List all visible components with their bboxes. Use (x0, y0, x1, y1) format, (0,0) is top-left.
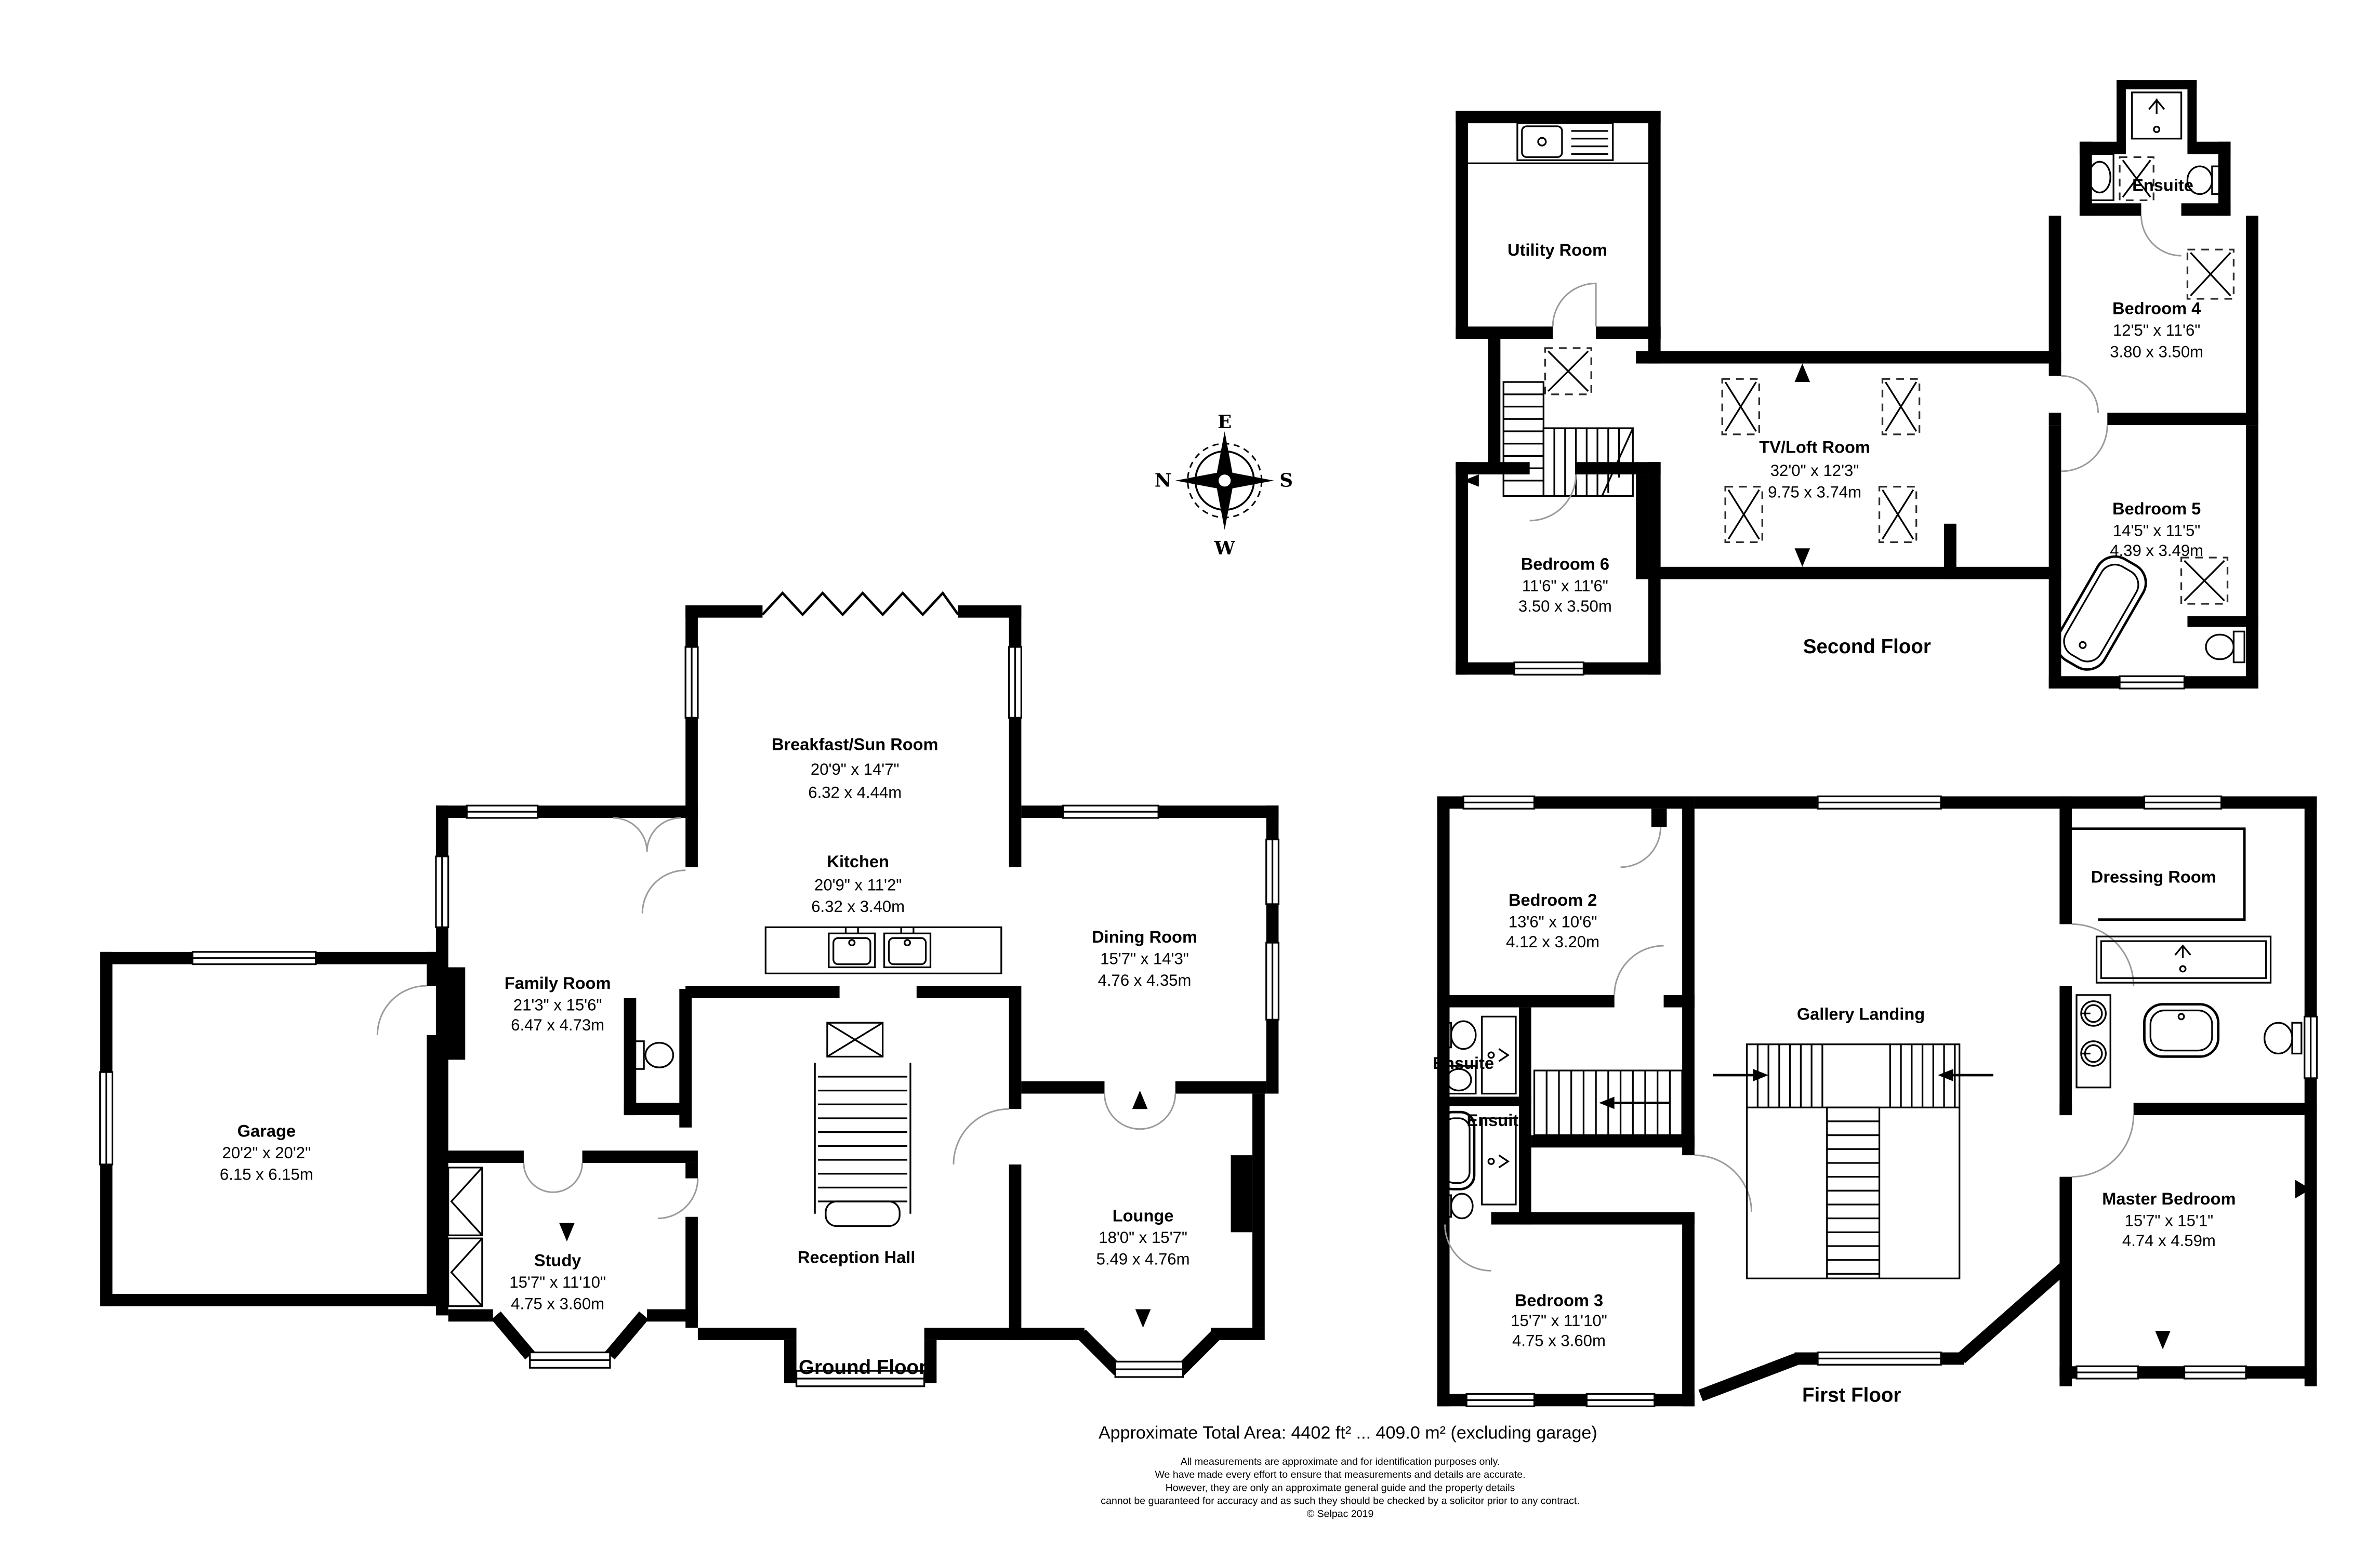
room-dim-breakfast-metric: 6.32 x 4.44m (808, 783, 902, 801)
room-dim-master-imperial: 15'7" x 15'1" (2125, 1211, 2214, 1229)
direction-arrow-down (1135, 1309, 1151, 1328)
flue-icon (827, 1023, 883, 1056)
window (1466, 1394, 1534, 1407)
direction-arrow-up (1132, 1091, 1148, 1109)
bath-icon (2144, 1004, 2218, 1057)
skylight-icon (2187, 249, 2233, 299)
room-dim-family-imperial: 21'3" x 15'6" (513, 996, 602, 1014)
compass-bottom-label: W (1214, 538, 1236, 559)
bedroom5-door-arc (2061, 425, 2107, 471)
toilet-icon (2265, 1023, 2302, 1053)
room-label-dressing: Dressing Room (2091, 867, 2216, 886)
fireplace (1231, 1155, 1253, 1232)
disclaimer-line: However, they are only an approximate ge… (1166, 1482, 1515, 1493)
window (100, 1072, 113, 1165)
room-dim-bedroom3-imperial: 15'7" x 11'10" (1511, 1312, 1607, 1330)
room-dim-kitchen-imperial: 20'9" x 11'2" (814, 876, 902, 894)
room-label-study: Study (534, 1251, 581, 1270)
sunroom-glazed-roofline (762, 593, 958, 614)
room-label-bedroom2: Bedroom 2 (1509, 890, 1597, 909)
garage-door-arc (377, 986, 427, 1035)
room-label-tvloft: TV/Loft Room (1759, 437, 1870, 456)
room-dim-bedroom6-imperial: 11'6" x 11'6" (1522, 577, 1608, 595)
skylight-icon (1880, 487, 1916, 543)
room-dim-study-imperial: 15'7" x 11'10" (509, 1273, 606, 1291)
floorplan-page: Utility Room TV/Loft Room 32'0" x 12'3" … (0, 0, 2380, 1548)
compass-top-label: E (1218, 412, 1232, 433)
ensuite-door-arc (2141, 216, 2181, 256)
room-label-bedroom5: Bedroom 5 (2112, 499, 2201, 518)
window (2185, 1366, 2246, 1379)
stairs-first-floor (1535, 1070, 1683, 1135)
room-label-dining: Dining Room (1092, 927, 1197, 946)
utility-door-arc (1553, 283, 1596, 326)
double-door-arc (524, 1163, 583, 1192)
window (1266, 943, 1279, 1020)
skylight-icon (1882, 379, 1919, 434)
room-dim-bedroom4-metric: 3.80 x 3.50m (2110, 343, 2203, 361)
vanity-basins-icon (2077, 995, 2110, 1088)
window (1514, 663, 1583, 675)
room-dim-bedroom3-metric: 4.75 x 3.60m (1512, 1332, 1606, 1350)
room-dim-garage-imperial: 20'2" x 20'2" (222, 1144, 311, 1162)
floorplan-svg: Utility Room TV/Loft Room 32'0" x 12'3" … (0, 0, 2380, 1548)
kitchen-island (765, 927, 1001, 973)
door-arc (642, 870, 685, 914)
landing-bay-walls (1701, 1266, 2066, 1396)
room-dim-bedroom5-metric: 4.39 x 3.49m (2110, 541, 2203, 560)
disclaimer-line: All measurements are approximate and for… (1181, 1456, 1500, 1467)
room-label-breakfast: Breakfast/Sun Room (772, 735, 938, 754)
floor-label-first: First Floor (1802, 1384, 1901, 1406)
toilet-icon (633, 1041, 673, 1069)
shower-cubicle-icon (1482, 1118, 1516, 1205)
window (1586, 1394, 1654, 1407)
floor-label-ground: Ground Floor (799, 1356, 927, 1379)
second-floor-plan: Utility Room TV/Loft Room 32'0" x 12'3" … (1456, 80, 2258, 689)
room-dim-bedroom2-imperial: 13'6" x 10'6" (1509, 912, 1597, 931)
room-label-lounge: Lounge (1113, 1206, 1174, 1225)
ground-floor-plan: Breakfast/Sun Room 20'9" x 14'7" 6.32 x … (100, 593, 1279, 1386)
direction-arrow-down (2155, 1331, 2171, 1349)
window (193, 952, 316, 964)
direction-arrow-up (1795, 364, 1810, 382)
room-label-ensuite1: Ensuite (1433, 1053, 1494, 1073)
bath-icon (2049, 549, 2153, 677)
room-label-reception: Reception Hall (798, 1248, 915, 1267)
dressing-door-arc (2072, 924, 2134, 986)
room-dim-dining-imperial: 15'7" x 14'3" (1100, 950, 1189, 968)
window (436, 856, 448, 927)
disclaimer-line: We have made every effort to ensure that… (1155, 1469, 1525, 1480)
skylight-icon (1725, 487, 1762, 543)
skylight-icon (1545, 348, 1591, 394)
window (467, 805, 537, 818)
room-label-bedroom4: Bedroom 4 (2112, 299, 2201, 318)
window (1463, 796, 1534, 809)
room-label-garage: Garage (237, 1121, 296, 1141)
lounge-door-arc (954, 1109, 1009, 1165)
sink-icon (829, 927, 875, 967)
floor-label-second: Second Floor (1803, 636, 1931, 658)
shower-icon (2097, 936, 2271, 983)
room-dim-family-metric: 6.47 x 4.73m (511, 1016, 604, 1034)
room-label-ensuite2: Ensuite (1467, 1110, 1528, 1130)
bedroom4-door-arc (2061, 376, 2098, 413)
utility-sink-icon (1517, 123, 1613, 160)
bedroom3-door-arc (1445, 1225, 1491, 1271)
room-label-bedroom3: Bedroom 3 (1515, 1291, 1603, 1310)
stairs-ground-floor (815, 1063, 910, 1226)
window (1009, 647, 1022, 718)
room-label-bedroom6: Bedroom 6 (1521, 554, 1609, 574)
room-dim-lounge-metric: 5.49 x 4.76m (1096, 1250, 1190, 1268)
room-label-master: Master Bedroom (2102, 1189, 2236, 1208)
room-dim-bedroom2-metric: 4.12 x 3.20m (1506, 933, 1599, 951)
room-label-family: Family Room (505, 973, 611, 993)
disclaimer-line: cannot be guaranteed for accuracy and as… (1101, 1496, 1579, 1507)
gallery-staircase (1713, 1044, 1993, 1279)
skylight-icon (2181, 558, 2228, 604)
room-dim-bedroom5-imperial: 14'5" x 11'5" (2113, 522, 2200, 540)
double-door-arc (613, 818, 681, 852)
copyright-text: © Selpac 2019 (1307, 1509, 1374, 1520)
landing-door-arc (1695, 1155, 1752, 1212)
stairs-second-floor (1503, 382, 1633, 496)
study-door-arc (658, 1179, 698, 1219)
window (1063, 805, 1158, 818)
total-area-text: Approximate Total Area: 4402 ft² ... 409… (1099, 1423, 1597, 1443)
window (685, 647, 698, 718)
skylight-icon (1722, 379, 1759, 434)
toilet-icon (2206, 631, 2244, 662)
window (1266, 839, 1279, 904)
window (2144, 796, 2221, 809)
window (2305, 1016, 2317, 1078)
room-dim-garage-metric: 6.15 x 6.15m (220, 1166, 313, 1184)
bay-window (1818, 1353, 1941, 1365)
room-dim-study-metric: 4.75 x 3.60m (511, 1295, 604, 1313)
wardrobe-icon (448, 1168, 482, 1306)
shower-icon (2132, 92, 2181, 139)
bay-window (1115, 1361, 1183, 1377)
door-arc (1621, 827, 1661, 867)
room-dim-tvloft-metric: 9.75 x 3.74m (1768, 483, 1861, 501)
compass-rose-icon: E N S W (1155, 412, 1293, 559)
direction-arrow-down (1795, 548, 1810, 567)
master-door-arc (2072, 1115, 2134, 1177)
bay-window (530, 1353, 610, 1368)
sink-icon (884, 927, 931, 967)
room-label-gallery-landing: Gallery Landing (1797, 1004, 1925, 1023)
room-label-utility: Utility Room (1508, 240, 1607, 259)
room-dim-dining-metric: 4.76 x 4.35m (1098, 971, 1192, 989)
room-dim-bedroom6-metric: 3.50 x 3.50m (1518, 597, 1612, 615)
room-dim-lounge-imperial: 18'0" x 15'7" (1099, 1228, 1187, 1247)
bay-window-walls (496, 1315, 644, 1355)
room-label-kitchen: Kitchen (827, 852, 889, 871)
room-dim-kitchen-metric: 6.32 x 3.40m (811, 897, 905, 916)
room-dim-master-metric: 4.74 x 4.59m (2122, 1232, 2216, 1250)
compass-left-label: N (1155, 470, 1172, 492)
window (2077, 1366, 2138, 1379)
window (2120, 676, 2185, 689)
room-dim-breakfast-imperial: 20'9" x 14'7" (811, 760, 900, 778)
footer: Approximate Total Area: 4402 ft² ... 409… (1099, 1423, 1597, 1520)
room-label-ensuite-2f: Ensuite (2132, 176, 2193, 195)
first-floor-plan: Bedroom 2 13'6" x 10'6" 4.12 x 3.20m Ens… (1433, 796, 2317, 1406)
window (1818, 796, 1941, 809)
room-dim-bedroom4-imperial: 12'5" x 11'6" (2113, 321, 2200, 339)
room-dim-tvloft-imperial: 32'0" x 12'3" (1770, 461, 1859, 480)
compass-right-label: S (1279, 470, 1293, 492)
bedroom2-door-arc (1615, 946, 1664, 995)
direction-arrow-down (559, 1223, 575, 1242)
